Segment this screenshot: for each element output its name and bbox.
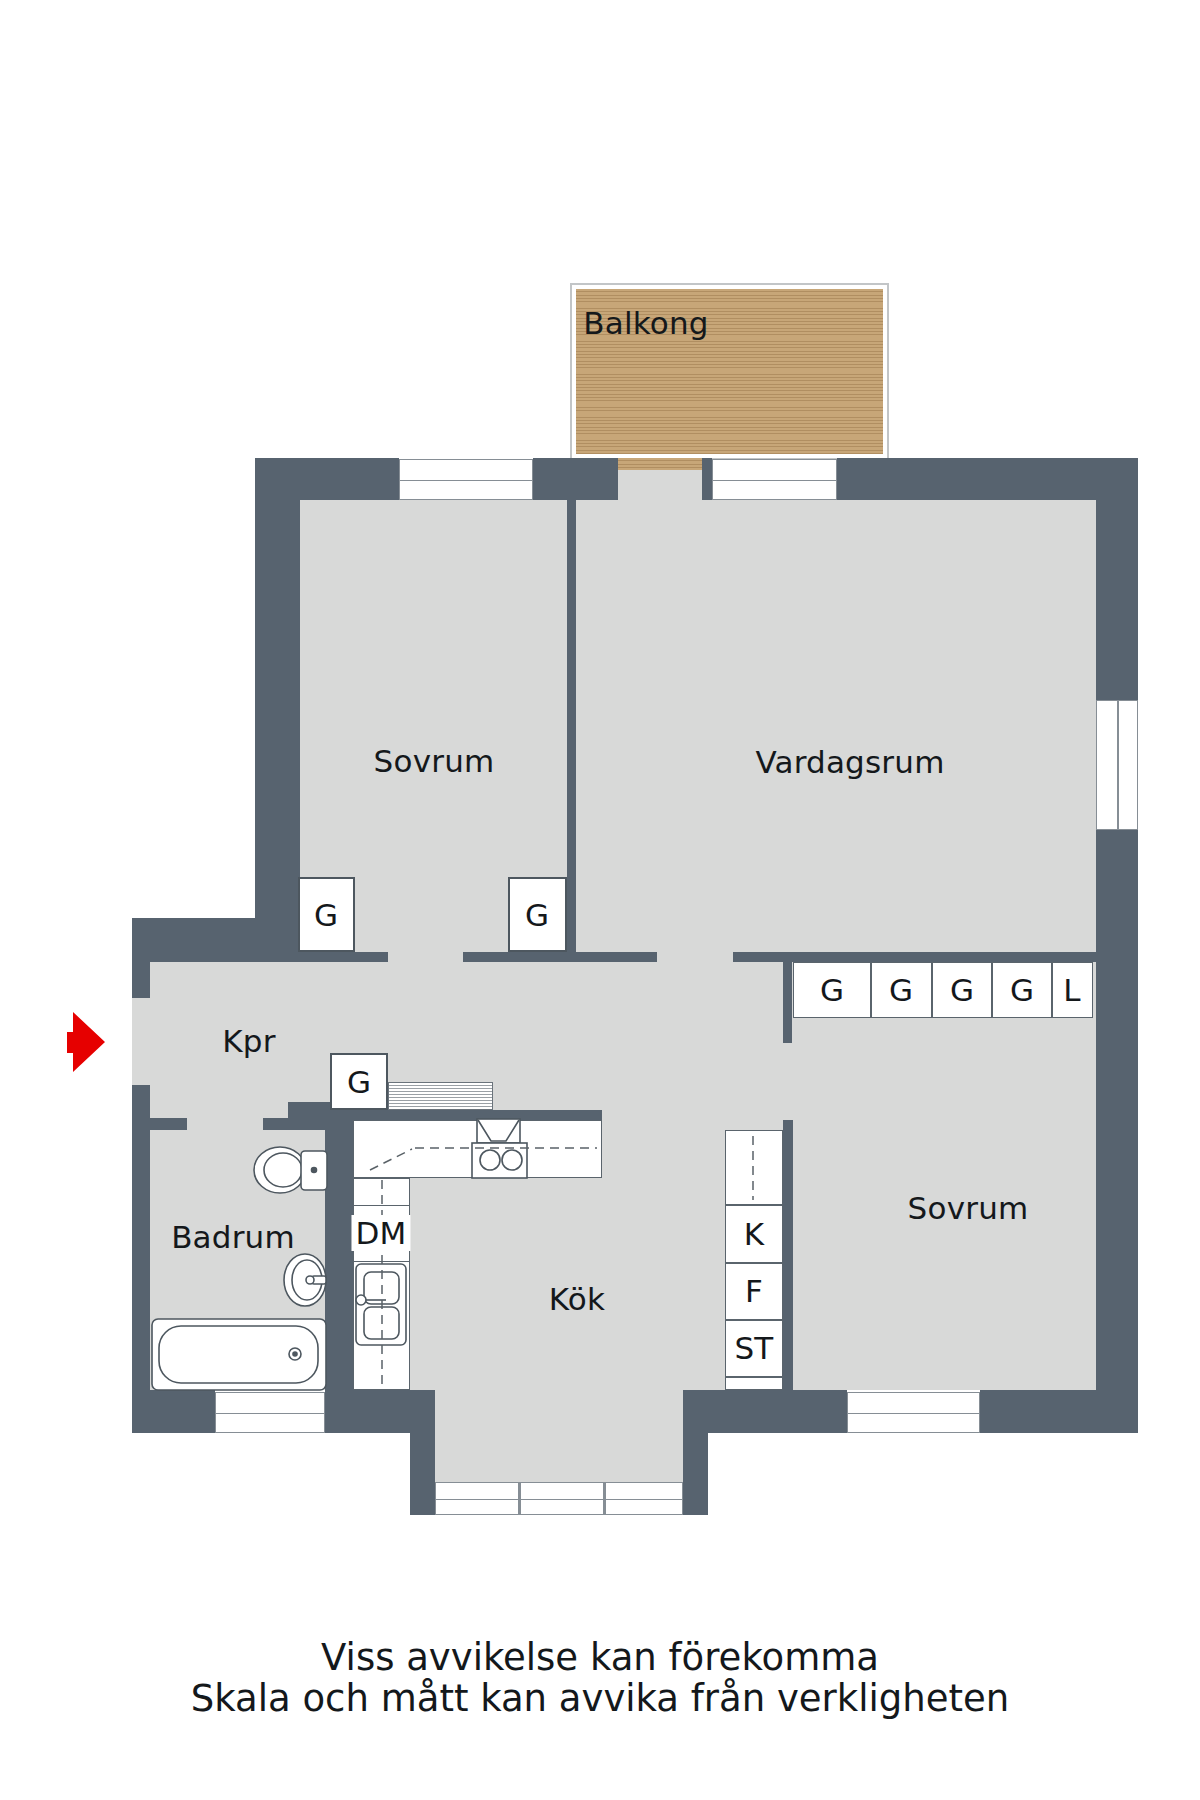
closet-label: G [314,897,338,933]
floor-upper-rooms [300,500,1096,952]
wall-bottom-mid [708,1390,847,1433]
wall-bathroom-east [325,1102,353,1433]
kitchen-counter-top [353,1120,602,1178]
room-label-kitchen: Kök [549,1281,605,1317]
window-living-room [712,459,837,500]
window-bathroom [215,1392,325,1433]
wall-bedroom2-west [783,1120,793,1390]
closet-label: G [525,897,549,933]
wall-right-upper [1096,458,1138,700]
radiator-icon [388,1082,493,1110]
kitchen-unit-filler [725,1377,783,1390]
dishwasher-label: DM [351,1215,410,1251]
room-label-hallway: Kpr [222,1023,275,1059]
kitchen-open-shelf [725,1130,783,1205]
floor-kitchen-bay [435,1390,683,1482]
window-bedroom-bottom [847,1392,980,1433]
wall-top-door-jamb [702,458,712,500]
wardrobe-label: G [950,972,974,1008]
wall-bedroom-living-divider [567,500,576,952]
wall-bottom-right [980,1390,1138,1433]
wardrobe-label: L [1063,972,1080,1008]
room-label-bedroom-top: Sovrum [374,743,495,779]
wall-top-right [837,458,1138,500]
wall-west-step [132,918,255,962]
cleaning-closet-label: ST [734,1330,773,1366]
wardrobe-label: G [820,972,844,1008]
window-living-room-east [1096,700,1138,830]
wall-west-upper [255,500,300,962]
wardrobe-label: G [1010,972,1034,1008]
room-label-living-room: Vardagsrum [755,744,944,780]
wall-hall-top-c [733,952,1096,962]
room-label-bedroom-bottom: Sovrum [908,1190,1029,1226]
freezer-label: F [745,1273,763,1309]
wall-kitchen-bay-right [683,1390,708,1515]
wall-west-entry-top [132,962,150,998]
wall-bathroom-top-b [263,1118,325,1130]
floor-plan: Balkong Sovrum Vardagsrum Kpr Badrum Kök… [0,0,1200,1800]
wardrobe-label: G [889,972,913,1008]
wall-top-left [255,458,399,500]
window-bedroom-top [399,459,533,500]
entrance-arrow-icon [67,1012,105,1072]
wall-hall-top-b [463,952,657,962]
disclaimer-line-1: Viss avvikelse kan förekomma [321,1636,879,1679]
wall-kitchen-bay-left [410,1433,435,1515]
wall-west-entry-bottom [132,1085,150,1433]
wall-top-mid [533,458,618,500]
disclaimer-line-2: Skala och mått kan avvika från verklighe… [191,1677,1009,1720]
balcony-label: Balkong [583,305,708,341]
room-label-bathroom: Badrum [171,1219,295,1255]
wall-bedroom2-stub [783,962,792,1043]
fridge-label: K [744,1216,765,1252]
wall-bathroom-top-a [150,1118,187,1130]
wall-right-lower [1096,830,1138,1433]
closet-label: G [347,1064,371,1100]
window-kitchen [435,1482,683,1515]
wall-hall-top-a [298,952,388,962]
balcony-door-threshold [618,458,702,470]
wall-bottom-bathroom-left [132,1390,215,1433]
